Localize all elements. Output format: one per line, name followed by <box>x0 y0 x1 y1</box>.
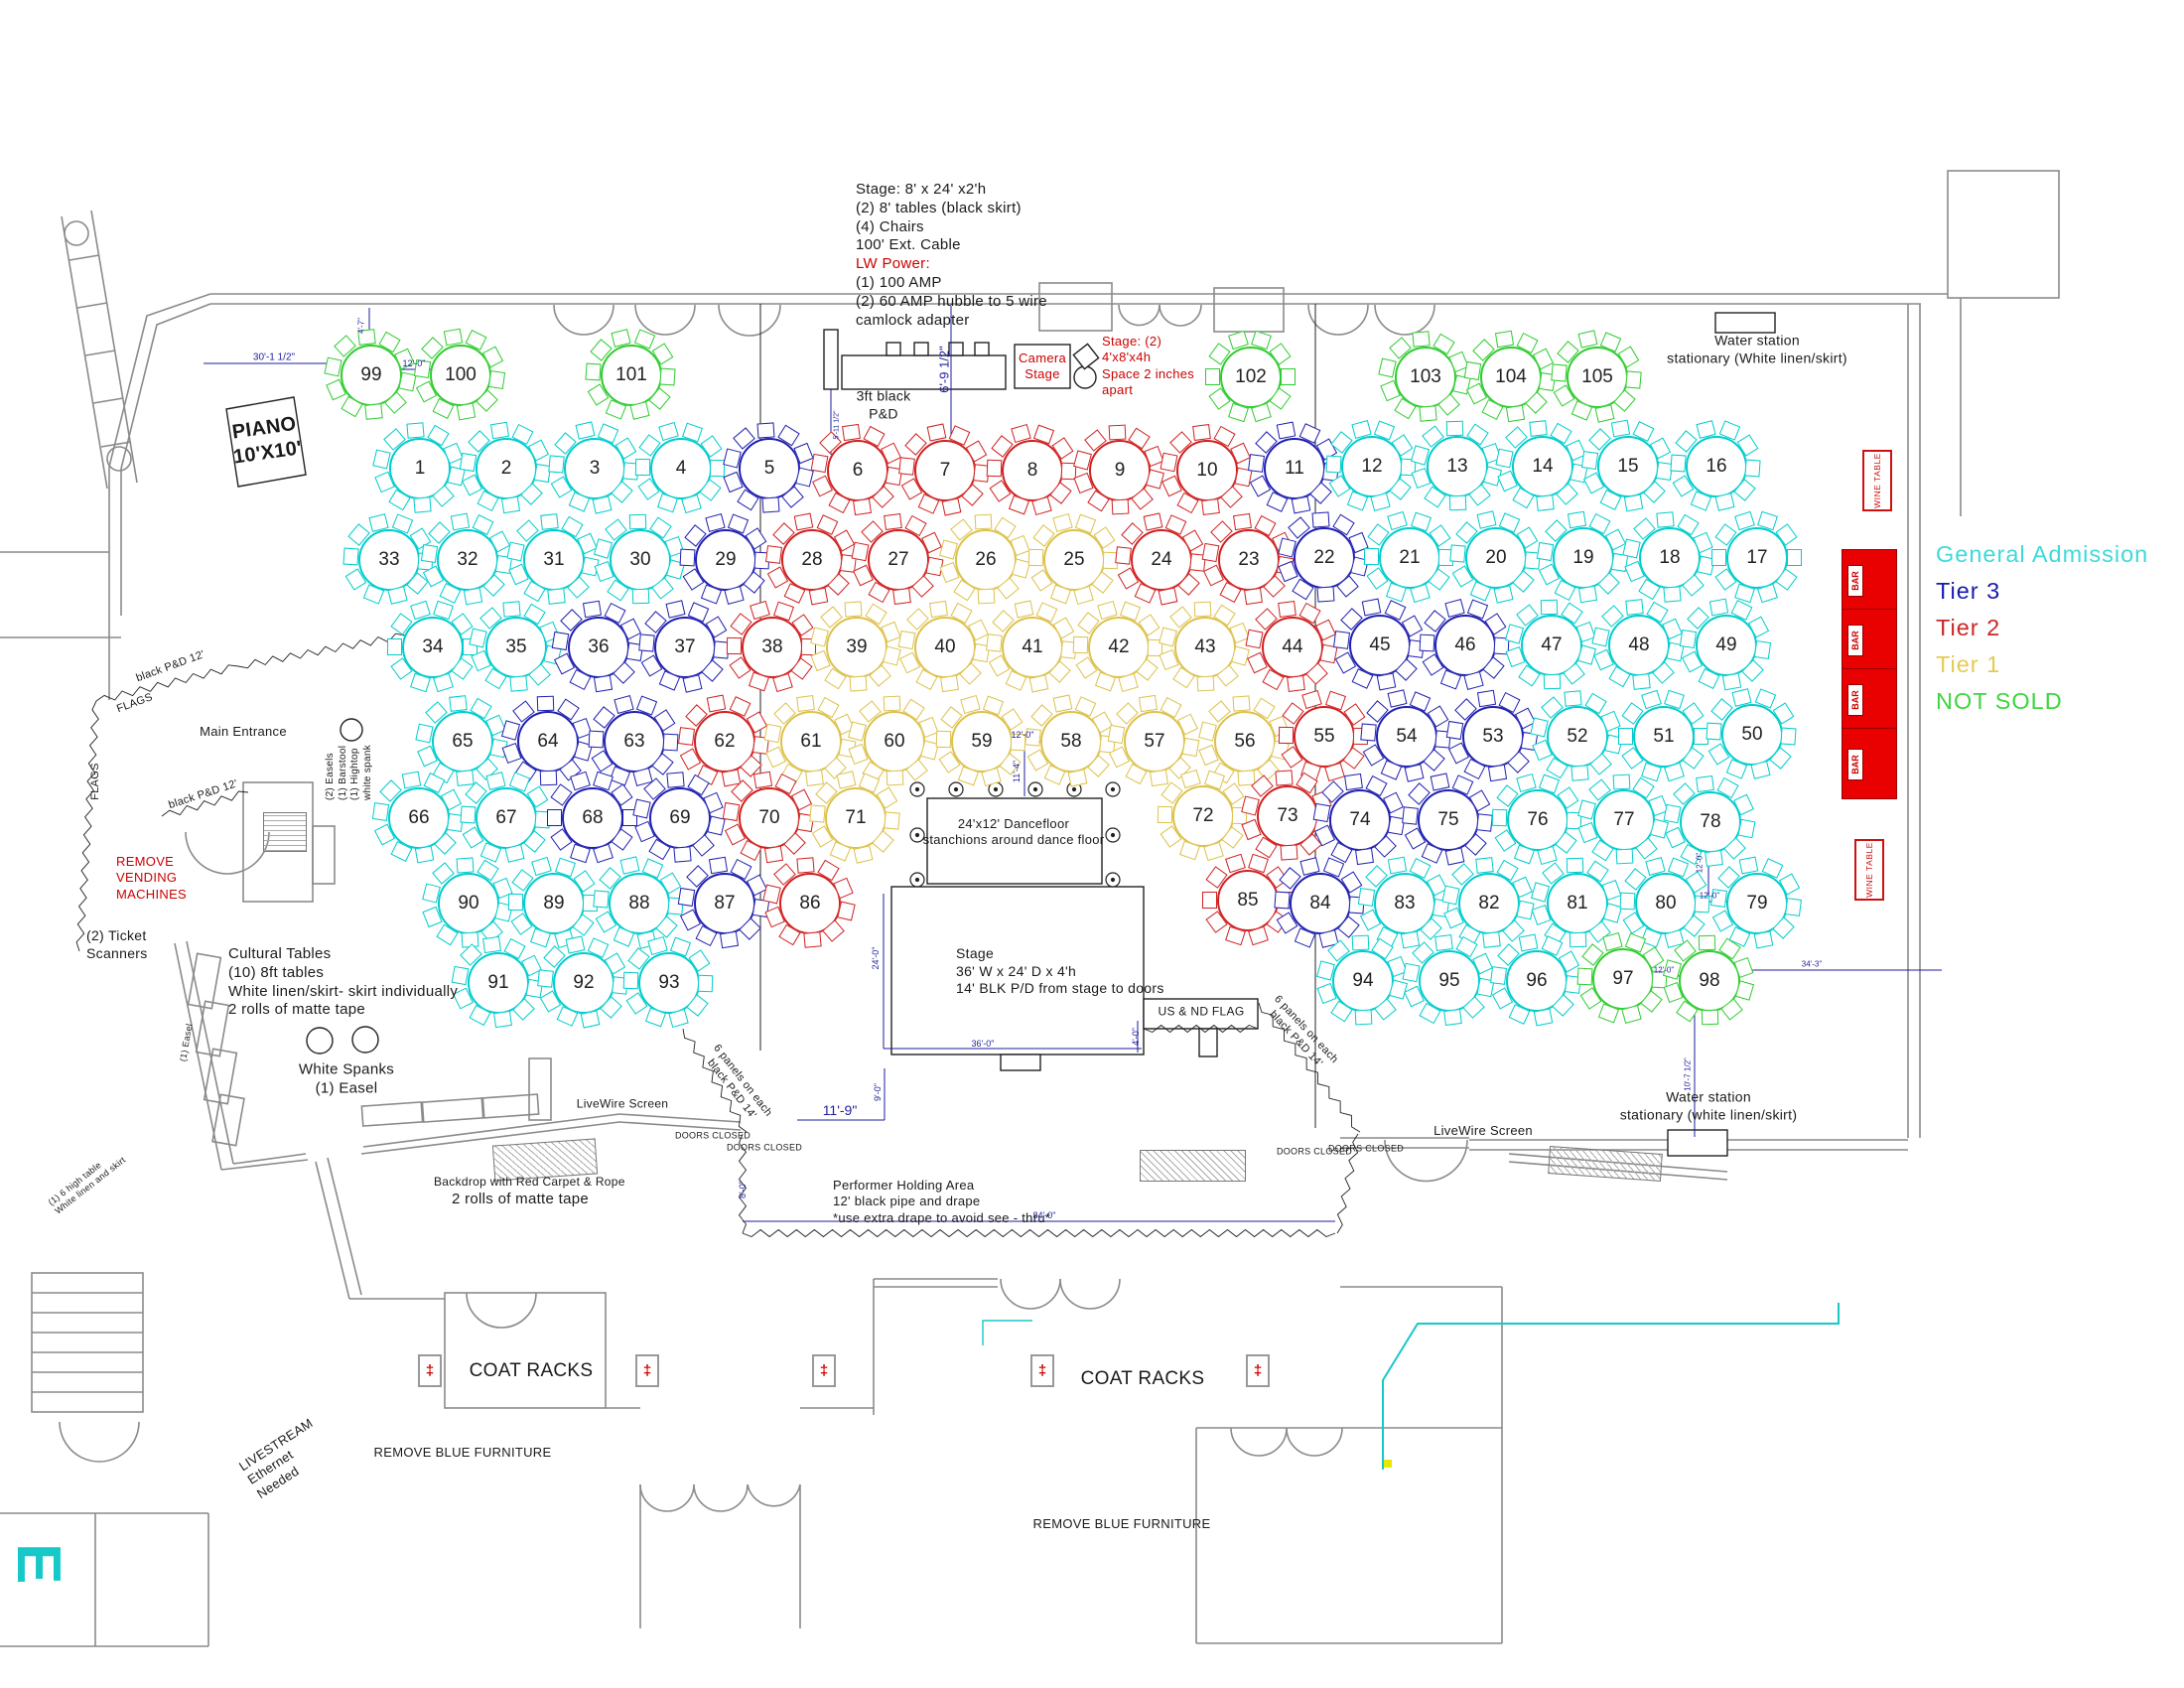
remove-blue-furniture-2: REMOVE BLUE FURNITURE <box>1033 1516 1211 1532</box>
utility-marker <box>1384 1460 1392 1468</box>
dim-12-0-d: 12'-0" <box>1700 892 1719 901</box>
chair <box>1362 599 1382 617</box>
dim-12-0-c: 12'-0" <box>1696 853 1705 873</box>
chair <box>1696 775 1714 792</box>
bar-table: BAR <box>1842 668 1897 729</box>
chair <box>1702 1010 1719 1026</box>
chair <box>1449 545 1465 563</box>
chair <box>1537 541 1554 560</box>
chair <box>629 513 647 529</box>
chair <box>1232 695 1250 711</box>
bar-table: BAR <box>1842 609 1897 669</box>
chair <box>342 547 358 565</box>
chair <box>460 805 476 823</box>
chair <box>1446 420 1464 436</box>
lw-power-items: (1) 100 AMP (2) 60 AMP hubble to 5 wire … <box>856 274 1047 330</box>
remove-vending: REMOVE VENDING MACHINES <box>116 854 187 903</box>
chair <box>929 601 948 618</box>
stage-spec-note: Stage: 8' x 24' x2'h (2) 8' tables (blac… <box>856 181 1022 255</box>
chair <box>837 902 855 921</box>
chair <box>1139 695 1158 712</box>
bar-label: BAR <box>1847 565 1863 597</box>
chair <box>1192 424 1211 441</box>
chair <box>1344 774 1363 790</box>
dim-24-0: 24'-0" <box>871 947 881 970</box>
backdrop-note: Backdrop with Red Carpet & Rope <box>434 1175 625 1190</box>
lw-power-label: LW Power: <box>856 255 930 274</box>
chair <box>1358 888 1375 907</box>
chair <box>1108 725 1126 744</box>
chair <box>678 727 695 746</box>
main-entrance: Main Entrance <box>200 724 287 740</box>
chair <box>1419 633 1434 651</box>
livewire-screen-right: LiveWire Screen <box>1433 1123 1533 1139</box>
chair <box>1657 511 1675 527</box>
chair <box>1475 857 1493 874</box>
chair <box>708 857 727 874</box>
coat-hook-glyph: ‡ <box>1038 1362 1046 1379</box>
water-station-rect-top <box>1715 313 1775 333</box>
dim-11-9: 11'-9" <box>823 1102 858 1118</box>
wine-table: WINE TABLE <box>1862 450 1892 511</box>
chair <box>1565 690 1582 706</box>
chair <box>1670 454 1686 472</box>
piano-label: PIANO 10'X10' <box>228 411 304 470</box>
doors-closed-4: DOORS CLOSED <box>1328 1143 1404 1154</box>
chair <box>548 456 564 474</box>
chair <box>986 460 1002 478</box>
chair <box>765 545 782 564</box>
chair <box>1567 511 1585 528</box>
chair <box>1248 454 1265 473</box>
bar-label-text: BAR <box>1850 690 1860 710</box>
chair <box>809 805 825 823</box>
chair <box>444 329 463 347</box>
chair <box>547 809 562 826</box>
chair <box>1664 804 1682 824</box>
dim-84-0: 84'-0" <box>1033 1210 1056 1220</box>
water-station-rect-bottom <box>1668 1130 1727 1156</box>
wine-table: WINE TABLE <box>1854 839 1884 901</box>
livewire-screen-left: LiveWire Screen <box>577 1097 669 1112</box>
bar-table: BAR <box>1842 549 1897 610</box>
chair <box>1278 727 1293 744</box>
chair <box>667 772 685 787</box>
chair <box>1275 770 1293 785</box>
chair <box>796 695 815 712</box>
chair <box>811 454 829 473</box>
chair <box>1160 453 1178 473</box>
chair <box>1490 966 1507 985</box>
chair <box>1626 370 1642 388</box>
doors-closed-2: DOORS CLOSED <box>727 1142 802 1153</box>
dancefloor-note: 24'x12' Dancefloor stanchions around dan… <box>923 816 1105 849</box>
dim-34-3: 34'-3" <box>1802 960 1822 969</box>
chair <box>449 695 467 712</box>
cultural-tables-note: Cultural Tables (10) 8ft tables White li… <box>228 945 458 1020</box>
chair <box>421 544 438 563</box>
chair <box>660 368 676 386</box>
chair <box>1619 892 1635 910</box>
stage-main-note: Stage 36' W x 24' D x 4'h 14' BLK P/D fr… <box>956 945 1164 998</box>
projection-screen-center <box>1140 1150 1246 1182</box>
coat-rack-icon: ‡ <box>418 1354 442 1387</box>
chair <box>803 932 821 948</box>
table-93: 93 <box>615 929 719 1033</box>
table-105: 105 <box>1544 324 1647 427</box>
chair <box>387 638 402 655</box>
chair <box>507 894 522 911</box>
tier-legend: General AdmissionTier 3Tier 2Tier 1NOT S… <box>1936 536 2148 720</box>
event-floorplan: 9910010110210310410512345678910111213141… <box>0 0 2184 1688</box>
chair <box>1781 728 1797 746</box>
chair <box>1519 934 1539 952</box>
chair <box>537 969 554 987</box>
chair <box>1699 934 1716 950</box>
chair <box>898 631 916 649</box>
chair <box>1541 599 1559 615</box>
chair <box>1739 857 1759 875</box>
chair <box>581 1010 601 1028</box>
chair <box>1476 690 1495 707</box>
chair <box>1333 631 1350 649</box>
chair <box>1446 720 1463 739</box>
legend-item-tier-1: Tier 1 <box>1936 646 2148 683</box>
chair <box>1068 769 1088 786</box>
chair <box>1494 331 1513 348</box>
pd-3ft-note: 3ft black P&D <box>857 388 911 423</box>
chair <box>634 459 649 476</box>
chair <box>451 513 470 531</box>
chair <box>1737 818 1755 838</box>
legend-item-tier-3: Tier 3 <box>1936 573 2148 610</box>
chair <box>1551 364 1567 382</box>
chair <box>1278 601 1297 618</box>
bar-label: BAR <box>1847 749 1863 780</box>
chair <box>1274 891 1290 909</box>
chair <box>482 936 501 953</box>
coat-racks-1: COAT RACKS <box>470 1359 594 1383</box>
coat-rack-icon: ‡ <box>812 1354 836 1387</box>
coat-rack-icon: ‡ <box>1030 1354 1054 1387</box>
us-nd-flag-label: US & ND FLAG <box>1159 1005 1245 1020</box>
chair <box>1402 806 1419 824</box>
bar-table: BAR <box>1842 728 1897 799</box>
chair <box>679 548 695 566</box>
chair <box>1491 809 1507 827</box>
chair <box>552 631 569 649</box>
camera-stage-label: Camera Stage <box>1019 351 1066 383</box>
chair <box>884 513 902 530</box>
chair <box>1576 967 1592 985</box>
table-16: 16 <box>1663 413 1766 516</box>
easel-barstool-note: (2) Easels (1) Barstool (1) Hightop whit… <box>325 745 374 800</box>
dim-11-4: 11'-4" <box>1012 761 1022 782</box>
chair <box>1115 546 1132 564</box>
chair <box>1581 451 1598 470</box>
coat-hook-glyph: ‡ <box>643 1362 651 1379</box>
chair <box>1735 980 1754 1000</box>
chair <box>1622 1005 1642 1024</box>
wine-table-label: WINE TABLE <box>1864 842 1874 898</box>
chair <box>582 601 601 618</box>
chair <box>588 730 604 748</box>
chair <box>698 975 714 993</box>
mirror-ball <box>1074 366 1096 388</box>
chair <box>493 1011 512 1028</box>
chair <box>883 695 900 711</box>
entrance-mat <box>263 812 307 852</box>
chair <box>1360 724 1376 742</box>
table-98: 98 <box>1656 927 1759 1031</box>
bar-label-text: BAR <box>1850 631 1860 650</box>
chair <box>503 601 521 617</box>
flags-b: FLAGS <box>89 763 103 800</box>
chair <box>622 972 638 990</box>
chair <box>764 724 782 744</box>
chair <box>585 362 601 380</box>
chair <box>638 634 654 652</box>
dim-36-0: 36'-0" <box>972 1039 995 1049</box>
legend-item-not-sold: NOT SOLD <box>1936 683 2148 720</box>
chair <box>981 768 1001 786</box>
dim-10-7: 10'-7 1/2" <box>1684 1057 1693 1091</box>
dim-4-7: 4'-7" <box>357 318 366 334</box>
chair <box>1680 630 1697 648</box>
coat-hook-glyph: ‡ <box>426 1362 434 1379</box>
table-101: 101 <box>578 322 681 425</box>
chair <box>1202 543 1220 562</box>
chair <box>372 802 389 821</box>
chair <box>1202 892 1217 909</box>
chair <box>1413 331 1431 347</box>
chair <box>1351 934 1369 950</box>
chair <box>1625 599 1643 616</box>
chair <box>726 637 741 654</box>
chair <box>844 601 862 617</box>
water-station-top: Water station stationary (White linen/sk… <box>1667 333 1847 367</box>
chair <box>540 513 558 530</box>
chair <box>402 772 421 789</box>
ticket-scanners: (2) Ticket Scanners <box>86 927 148 962</box>
table-86: 86 <box>756 850 860 953</box>
chair <box>407 422 425 438</box>
chair <box>1785 898 1802 916</box>
wine-table-label: WINE TABLE <box>1872 453 1882 508</box>
chair <box>852 542 870 562</box>
chair <box>456 857 474 873</box>
chair <box>1233 513 1252 530</box>
dim-12-0-a: 12'-0" <box>403 358 426 368</box>
table-99: 99 <box>318 322 421 425</box>
chair <box>1618 728 1633 745</box>
chair <box>707 695 727 713</box>
chair <box>1072 636 1088 654</box>
dim-6-9: 6'-9 1/2" <box>937 346 952 393</box>
chair <box>1567 857 1584 873</box>
chair <box>1246 630 1264 649</box>
white-spanks-note: White Spanks (1) Easel <box>299 1060 394 1098</box>
chair <box>1706 722 1721 740</box>
chair <box>1787 549 1802 566</box>
chair <box>668 1009 688 1028</box>
table-102: 102 <box>1197 324 1300 427</box>
chair <box>797 857 815 873</box>
chair <box>1027 549 1043 567</box>
coat-racks-2: COAT RACKS <box>1081 1367 1205 1391</box>
chair <box>885 811 900 829</box>
stage2-note: Stage: (2) 4'x8'x4h Space 2 inches apart <box>1102 334 1194 398</box>
bar-label: BAR <box>1847 625 1863 656</box>
chair <box>1711 549 1726 566</box>
chair <box>756 422 774 438</box>
coat-rack-icon: ‡ <box>1246 1354 1270 1387</box>
chair <box>1193 601 1211 617</box>
chair <box>1464 360 1481 379</box>
legend-item-general-admission: General Admission <box>1936 536 2148 573</box>
chair <box>488 370 505 389</box>
performer-holding-note: Performer Holding Area 12' black pipe an… <box>833 1178 1050 1226</box>
bar-label-text: BAR <box>1850 571 1860 591</box>
chair <box>935 731 951 749</box>
chair <box>752 772 771 788</box>
chair <box>720 931 739 948</box>
chair <box>723 801 740 820</box>
chair <box>1403 963 1421 983</box>
chair <box>1709 599 1728 617</box>
bar-label: BAR <box>1847 684 1863 716</box>
water-station-bottom: Water station stationary (white linen/sk… <box>1620 1089 1798 1124</box>
chair <box>986 633 1003 651</box>
chair <box>1745 460 1761 478</box>
chair <box>1311 511 1329 527</box>
dim-12-0-e: 12'-0" <box>1654 966 1674 975</box>
table-49: 49 <box>1673 592 1776 695</box>
coat-hook-glyph: ‡ <box>820 1362 828 1379</box>
elevator-letter: E <box>0 1543 76 1585</box>
chair <box>794 513 814 531</box>
remove-blue-furniture-1: REMOVE BLUE FURNITURE <box>374 1445 552 1461</box>
chair <box>1388 857 1407 875</box>
chair <box>1611 420 1630 438</box>
backdrop-note-2: 2 rolls of matte tape <box>452 1191 589 1209</box>
chair <box>842 424 861 441</box>
legend-item-tier-2: Tier 2 <box>1936 610 2148 646</box>
bar-label-text: BAR <box>1850 755 1860 774</box>
dim-9-0: 9'-0" <box>873 1083 883 1101</box>
coat-hook-glyph: ‡ <box>1254 1362 1262 1379</box>
dim-4-0: 4'-0" <box>1131 1028 1141 1046</box>
dim-30-1: 30'-1 1/2" <box>253 352 295 363</box>
dim-5-11: 5'-11 1/2" <box>834 411 841 440</box>
chair <box>898 457 915 475</box>
chair <box>1277 422 1297 440</box>
chair <box>1612 774 1630 789</box>
chair <box>1157 806 1171 823</box>
chair <box>1443 1009 1462 1026</box>
chair <box>1313 803 1331 822</box>
chair <box>1355 1010 1373 1026</box>
chair <box>1533 1008 1553 1026</box>
chair <box>1434 934 1453 951</box>
dim-8-0: 8'-0" <box>738 1181 748 1198</box>
doors-closed-1: DOORS CLOSED <box>675 1130 751 1141</box>
chair <box>593 891 609 909</box>
chair <box>537 695 555 711</box>
chair <box>1205 368 1220 385</box>
table-100: 100 <box>407 322 510 425</box>
chair <box>1363 548 1378 565</box>
coat-rack-icon: ‡ <box>635 1354 659 1387</box>
chair <box>460 452 477 471</box>
dim-12-0-b: 12'-0" <box>1012 730 1034 740</box>
chair <box>678 887 695 906</box>
chair <box>974 513 992 529</box>
chair <box>1754 640 1771 659</box>
chair <box>1529 420 1547 437</box>
chair <box>489 422 508 439</box>
chair <box>1281 368 1296 385</box>
chair <box>1108 424 1126 440</box>
chair <box>1325 455 1341 473</box>
